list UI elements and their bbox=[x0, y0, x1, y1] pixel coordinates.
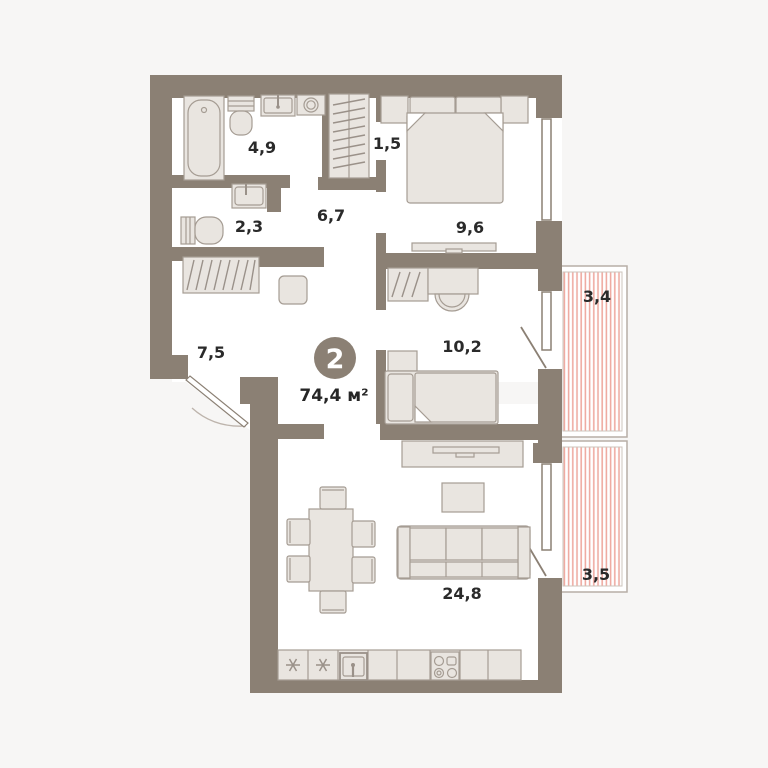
pouf bbox=[279, 276, 307, 304]
bedroom-nightstand-right bbox=[501, 96, 528, 123]
bedroom-window bbox=[537, 118, 562, 221]
bathtub bbox=[184, 96, 224, 180]
bathroom-sink bbox=[261, 95, 295, 116]
stove bbox=[431, 652, 459, 680]
floor-plan-canvas: 4,9 1,5 2,3 6,7 9,6 7,5 10,2 24,8 3,4 3,… bbox=[0, 0, 768, 768]
floor-plan: 4,9 1,5 2,3 6,7 9,6 7,5 10,2 24,8 3,4 3,… bbox=[0, 0, 768, 768]
closet-wardrobe bbox=[329, 94, 369, 178]
room-label-bedroom: 9,6 bbox=[456, 218, 484, 237]
total-area-label: 74,4 м² bbox=[299, 386, 368, 406]
single-bed bbox=[385, 371, 498, 424]
kids-nightstand bbox=[388, 351, 417, 371]
tv-stand bbox=[402, 441, 523, 467]
room-label-corridor: 6,7 bbox=[317, 206, 345, 225]
room-label-kids-room: 10,2 bbox=[442, 337, 481, 356]
coffee-table bbox=[442, 483, 484, 512]
toilet-bathroom bbox=[228, 96, 254, 135]
kitchen-sink bbox=[340, 653, 367, 680]
room-label-bathroom: 4,9 bbox=[248, 138, 276, 157]
room-count-number: 2 bbox=[326, 344, 345, 375]
room-count-badge: 2 bbox=[314, 337, 356, 379]
washing-machine bbox=[297, 95, 325, 115]
wc-sink bbox=[232, 184, 266, 208]
kitchen-counter bbox=[278, 650, 521, 680]
bedroom-tv bbox=[412, 243, 496, 253]
room-label-loggia-upper: 3,4 bbox=[583, 287, 611, 306]
room-label-loggia-lower: 3,5 bbox=[582, 565, 610, 584]
desk bbox=[428, 268, 478, 294]
room-label-wc: 2,3 bbox=[235, 217, 263, 236]
double-bed bbox=[407, 97, 503, 203]
sofa bbox=[397, 526, 530, 579]
room-label-hallway: 7,5 bbox=[197, 343, 225, 362]
hallway-wardrobe bbox=[183, 257, 259, 293]
room-label-closet: 1,5 bbox=[373, 134, 401, 153]
dining-table bbox=[309, 509, 353, 591]
toilet-wc bbox=[181, 217, 223, 244]
bedroom-nightstand-left bbox=[381, 96, 408, 123]
room-label-living-kitchen: 24,8 bbox=[442, 584, 481, 603]
kids-wardrobe bbox=[388, 268, 428, 301]
